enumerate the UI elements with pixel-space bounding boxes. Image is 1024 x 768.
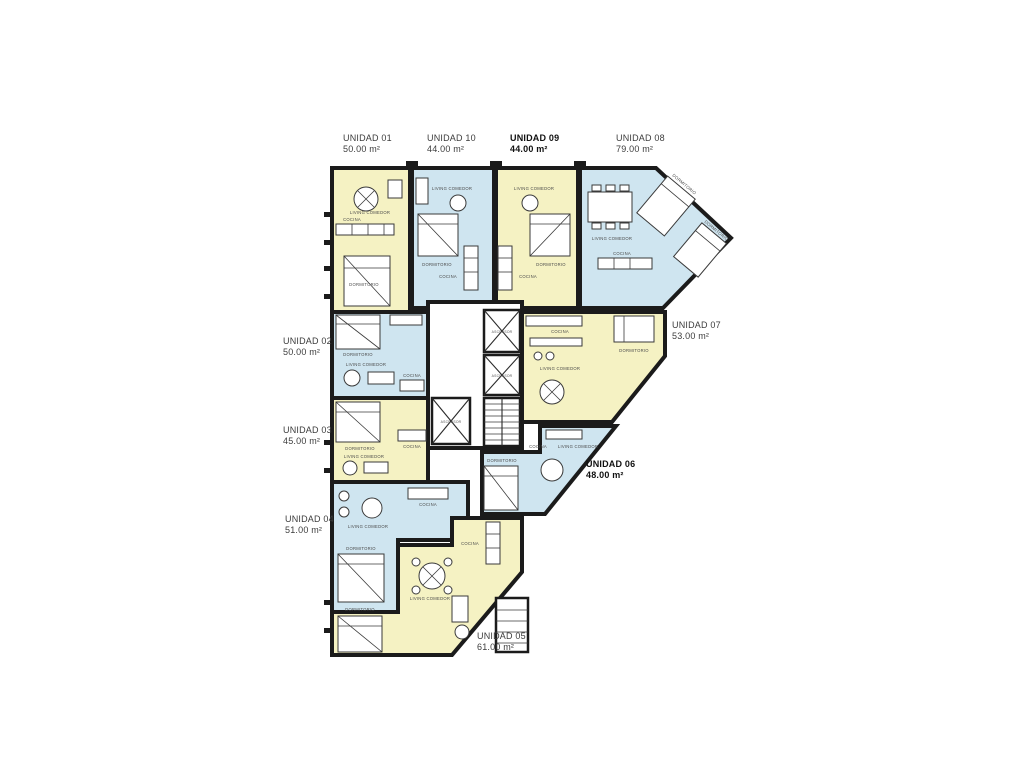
svg-text:COCINA: COCINA: [529, 444, 547, 449]
unit-area: 61.00 m²: [477, 642, 526, 653]
svg-text:LIVING COMEDOR: LIVING COMEDOR: [432, 186, 472, 191]
unit-area: 44.00 m²: [510, 144, 559, 155]
kitchen-counter: [408, 488, 448, 499]
sofa: [452, 596, 468, 622]
sofa: [364, 462, 388, 473]
svg-text:DORMITORIO: DORMITORIO: [619, 348, 649, 353]
unit-name: UNIDAD 10: [427, 133, 476, 144]
unit-area: 44.00 m²: [427, 144, 476, 155]
unit-05-label: UNIDAD 05 61.00 m²: [477, 631, 526, 652]
svg-text:LIVING COMEDOR: LIVING COMEDOR: [558, 444, 598, 449]
sofa: [416, 178, 428, 204]
unit-name: UNIDAD 02: [283, 336, 332, 347]
dresser: [390, 315, 422, 325]
svg-text:COCINA: COCINA: [439, 274, 457, 279]
svg-text:ASCENSOR: ASCENSOR: [492, 374, 513, 378]
unit-name: UNIDAD 03: [283, 425, 332, 436]
svg-text:COCINA: COCINA: [551, 329, 569, 334]
unit-04-label: UNIDAD 04 51.00 m²: [285, 514, 334, 535]
chair: [412, 586, 420, 594]
elevator-shaft: ASCENSOR: [432, 398, 470, 444]
bar-counter: [530, 338, 582, 346]
unit-area: 50.00 m²: [283, 347, 332, 358]
svg-text:LIVING COMEDOR: LIVING COMEDOR: [344, 454, 384, 459]
svg-text:LIVING COMEDOR: LIVING COMEDOR: [410, 596, 450, 601]
svg-text:DORMITORIO: DORMITORIO: [349, 282, 379, 287]
unit-name: UNIDAD 05: [477, 631, 526, 642]
round-table: [362, 498, 382, 518]
svg-text:COCINA: COCINA: [403, 444, 421, 449]
round-table: [344, 370, 360, 386]
svg-text:COCINA: COCINA: [403, 373, 421, 378]
svg-text:LIVING COMEDOR: LIVING COMEDOR: [540, 366, 580, 371]
staircase: [484, 398, 520, 446]
chair: [534, 352, 542, 360]
round-table: [522, 195, 538, 211]
floor-plan-drawing: ASCENSOR ASCENSOR ASCENSOR: [0, 0, 1024, 768]
floor-plan-page: ASCENSOR ASCENSOR ASCENSOR: [0, 0, 1024, 768]
svg-text:COCINA: COCINA: [419, 502, 437, 507]
svg-text:DORMITORIO: DORMITORIO: [343, 352, 373, 357]
svg-text:LIVING COMEDOR: LIVING COMEDOR: [514, 186, 554, 191]
svg-text:DORMITORIO: DORMITORIO: [422, 262, 452, 267]
unit-name: UNIDAD 01: [343, 133, 392, 144]
unit-09-label: UNIDAD 09 44.00 m²: [510, 133, 559, 154]
svg-text:DORMITORIO: DORMITORIO: [345, 607, 375, 612]
unit-02-label: UNIDAD 02 50.00 m²: [283, 336, 332, 357]
unit-area: 48.00 m²: [586, 470, 635, 481]
unit-06-label: UNIDAD 06 48.00 m²: [586, 459, 635, 480]
svg-text:COCINA: COCINA: [519, 274, 537, 279]
elevator-shaft: ASCENSOR: [484, 310, 520, 352]
chair: [339, 507, 349, 517]
elevator-shaft: ASCENSOR: [484, 355, 520, 395]
kitchen-counter: [464, 246, 478, 290]
unit-area: 51.00 m²: [285, 525, 334, 536]
round-table: [343, 461, 357, 475]
svg-text:COCINA: COCINA: [613, 251, 631, 256]
unit-08-label: UNIDAD 08 79.00 m²: [616, 133, 665, 154]
unit-name: UNIDAD 08: [616, 133, 665, 144]
chair: [444, 586, 452, 594]
unit-area: 53.00 m²: [672, 331, 721, 342]
svg-text:DORMITORIO: DORMITORIO: [345, 446, 375, 451]
unit-07-label: UNIDAD 07 53.00 m²: [672, 320, 721, 341]
round-table: [450, 195, 466, 211]
svg-text:DORMITORIO: DORMITORIO: [536, 262, 566, 267]
svg-text:LIVING COMEDOR: LIVING COMEDOR: [346, 362, 386, 367]
kitchen-counter: [598, 258, 652, 269]
unit-name: UNIDAD 07: [672, 320, 721, 331]
chair: [339, 491, 349, 501]
svg-text:COCINA: COCINA: [461, 541, 479, 546]
svg-text:LIVING COMEDOR: LIVING COMEDOR: [592, 236, 632, 241]
unit-area: 45.00 m²: [283, 436, 332, 447]
svg-text:COCINA: COCINA: [343, 217, 361, 222]
armchair: [388, 180, 402, 198]
unit-10-label: UNIDAD 10 44.00 m²: [427, 133, 476, 154]
armchair: [455, 625, 469, 639]
unit-area: 50.00 m²: [343, 144, 392, 155]
svg-text:DORMITORIO: DORMITORIO: [346, 546, 376, 551]
building-core: ASCENSOR ASCENSOR ASCENSOR: [428, 302, 522, 448]
kitchen-counter: [546, 430, 582, 439]
unit-03-label: UNIDAD 03 45.00 m²: [283, 425, 332, 446]
kitchen-counter: [526, 316, 582, 326]
chair: [546, 352, 554, 360]
svg-text:DORMITORIO: DORMITORIO: [487, 458, 517, 463]
svg-text:LIVING COMEDOR: LIVING COMEDOR: [348, 524, 388, 529]
kitchen-counter: [498, 246, 512, 290]
dining-table: [588, 192, 632, 222]
kitchen-counter: [400, 380, 424, 391]
unit-area: 79.00 m²: [616, 144, 665, 155]
svg-text:LIVING COMEDOR: LIVING COMEDOR: [350, 210, 390, 215]
sofa: [368, 372, 394, 384]
round-table: [541, 459, 563, 481]
unit-name: UNIDAD 06: [586, 459, 635, 470]
unit-name: UNIDAD 04: [285, 514, 334, 525]
svg-text:ASCENSOR: ASCENSOR: [441, 420, 462, 424]
kitchen-counter: [398, 430, 426, 441]
bed: [614, 316, 654, 342]
svg-text:ASCENSOR: ASCENSOR: [492, 330, 513, 334]
unit-01-label: UNIDAD 01 50.00 m²: [343, 133, 392, 154]
kitchen-counter: [486, 522, 500, 564]
chair: [444, 558, 452, 566]
unit-name: UNIDAD 09: [510, 133, 559, 144]
chair: [412, 558, 420, 566]
kitchen-counter: [336, 224, 394, 235]
